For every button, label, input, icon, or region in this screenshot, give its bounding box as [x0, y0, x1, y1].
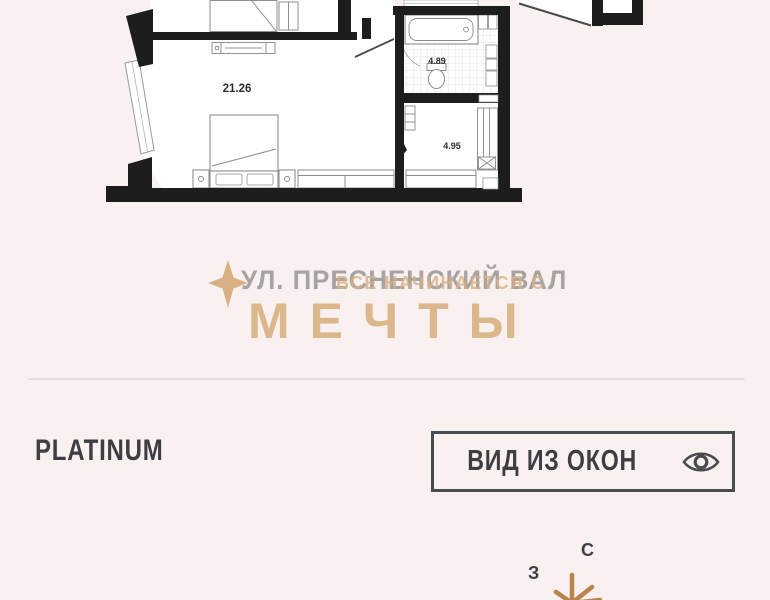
brand-slogan-overlay: ВСЕ НАЧИНАЕТСЯ С: [336, 273, 545, 294]
bathtub-icon: [405, 15, 478, 44]
compass-north-label: С: [581, 540, 594, 561]
room-label-bathroom: 4.89: [428, 56, 446, 66]
toilet-icon: [427, 64, 446, 89]
view-button-label: ВИД ИЗ ОКОН: [467, 445, 637, 478]
wall-niche: [479, 95, 498, 102]
divider-line: [28, 378, 745, 380]
console-table-icon: [212, 43, 275, 54]
view-from-windows-button[interactable]: ВИД ИЗ ОКОН: [431, 431, 735, 492]
brand-slogan-word: МЕЧТЫ: [248, 296, 538, 346]
room-label-living: 21.26: [223, 83, 252, 95]
room-label-hallway: 4.95: [443, 141, 461, 151]
eye-icon: [682, 448, 720, 476]
compass-star-icon: [534, 569, 610, 600]
floor-plan: 21.26 4.89 4.95: [0, 0, 770, 206]
listing-image: 21.26 4.89 4.95 УЛ. ПРЕСНЕНСКИЙ ВАЛ ВСЕ …: [0, 0, 770, 600]
tier-label: PLATINUM: [35, 434, 164, 468]
wall-niche-2: [483, 178, 498, 189]
bed-upper-icon: [210, 1, 298, 32]
dresser-icon: [298, 170, 476, 188]
